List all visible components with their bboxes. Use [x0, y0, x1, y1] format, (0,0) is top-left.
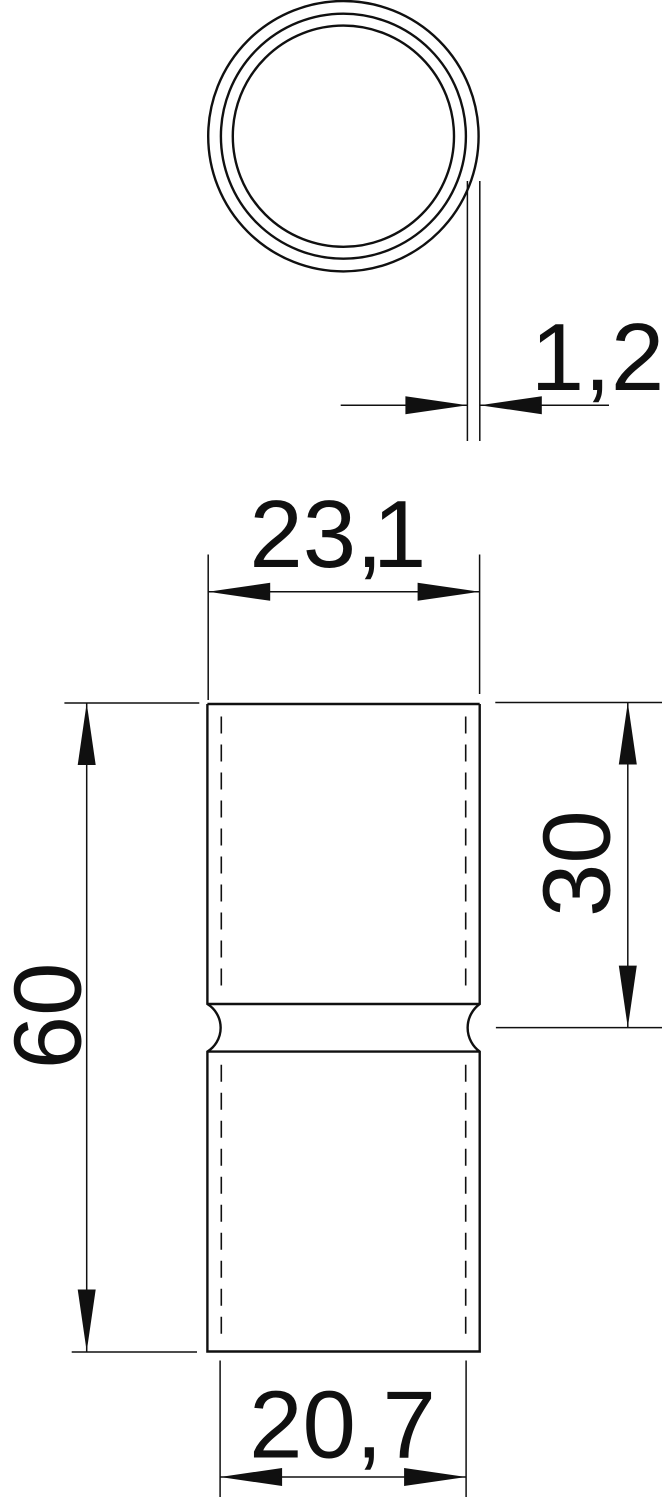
svg-text:60: 60 [0, 963, 101, 1070]
svg-text:23,1: 23,1 [249, 481, 426, 588]
svg-text:30: 30 [524, 810, 631, 917]
svg-text:1,2: 1,2 [531, 304, 662, 411]
svg-text:20,7: 20,7 [249, 1372, 436, 1479]
